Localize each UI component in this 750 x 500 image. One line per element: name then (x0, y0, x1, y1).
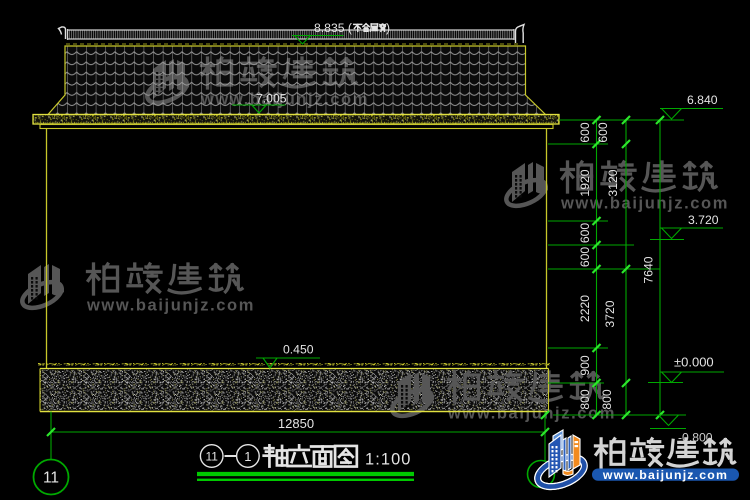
svg-text:2220: 2220 (578, 295, 592, 322)
svg-text:±0.000: ±0.000 (674, 355, 714, 370)
svg-text:3120: 3120 (606, 169, 620, 196)
svg-text:12850: 12850 (278, 416, 314, 431)
svg-text:900: 900 (578, 355, 592, 376)
svg-text:3720: 3720 (603, 300, 617, 327)
svg-text:11: 11 (43, 470, 59, 487)
svg-text:3.720: 3.720 (688, 213, 719, 227)
svg-text:1: 1 (244, 449, 251, 464)
svg-text:600: 600 (578, 122, 592, 143)
svg-text:): ) (386, 21, 390, 35)
svg-text:0.450: 0.450 (283, 343, 314, 357)
svg-text:www.baijunjz.com: www.baijunjz.com (602, 468, 728, 482)
svg-text:6.840: 6.840 (687, 93, 718, 107)
svg-text:800: 800 (600, 389, 614, 410)
svg-text:600: 600 (578, 223, 592, 244)
svg-text:600: 600 (578, 247, 592, 268)
svg-text:11: 11 (205, 450, 218, 464)
svg-text:800: 800 (578, 389, 592, 410)
svg-text:7640: 7640 (642, 256, 656, 283)
svg-text:1:100: 1:100 (365, 451, 412, 469)
svg-text:8.835 (: 8.835 ( (314, 21, 352, 35)
svg-text:7.005: 7.005 (256, 92, 287, 106)
svg-text:600: 600 (596, 122, 610, 143)
svg-text:1920: 1920 (578, 169, 592, 196)
svg-text:www.baijunjz.com: www.baijunjz.com (86, 297, 255, 315)
